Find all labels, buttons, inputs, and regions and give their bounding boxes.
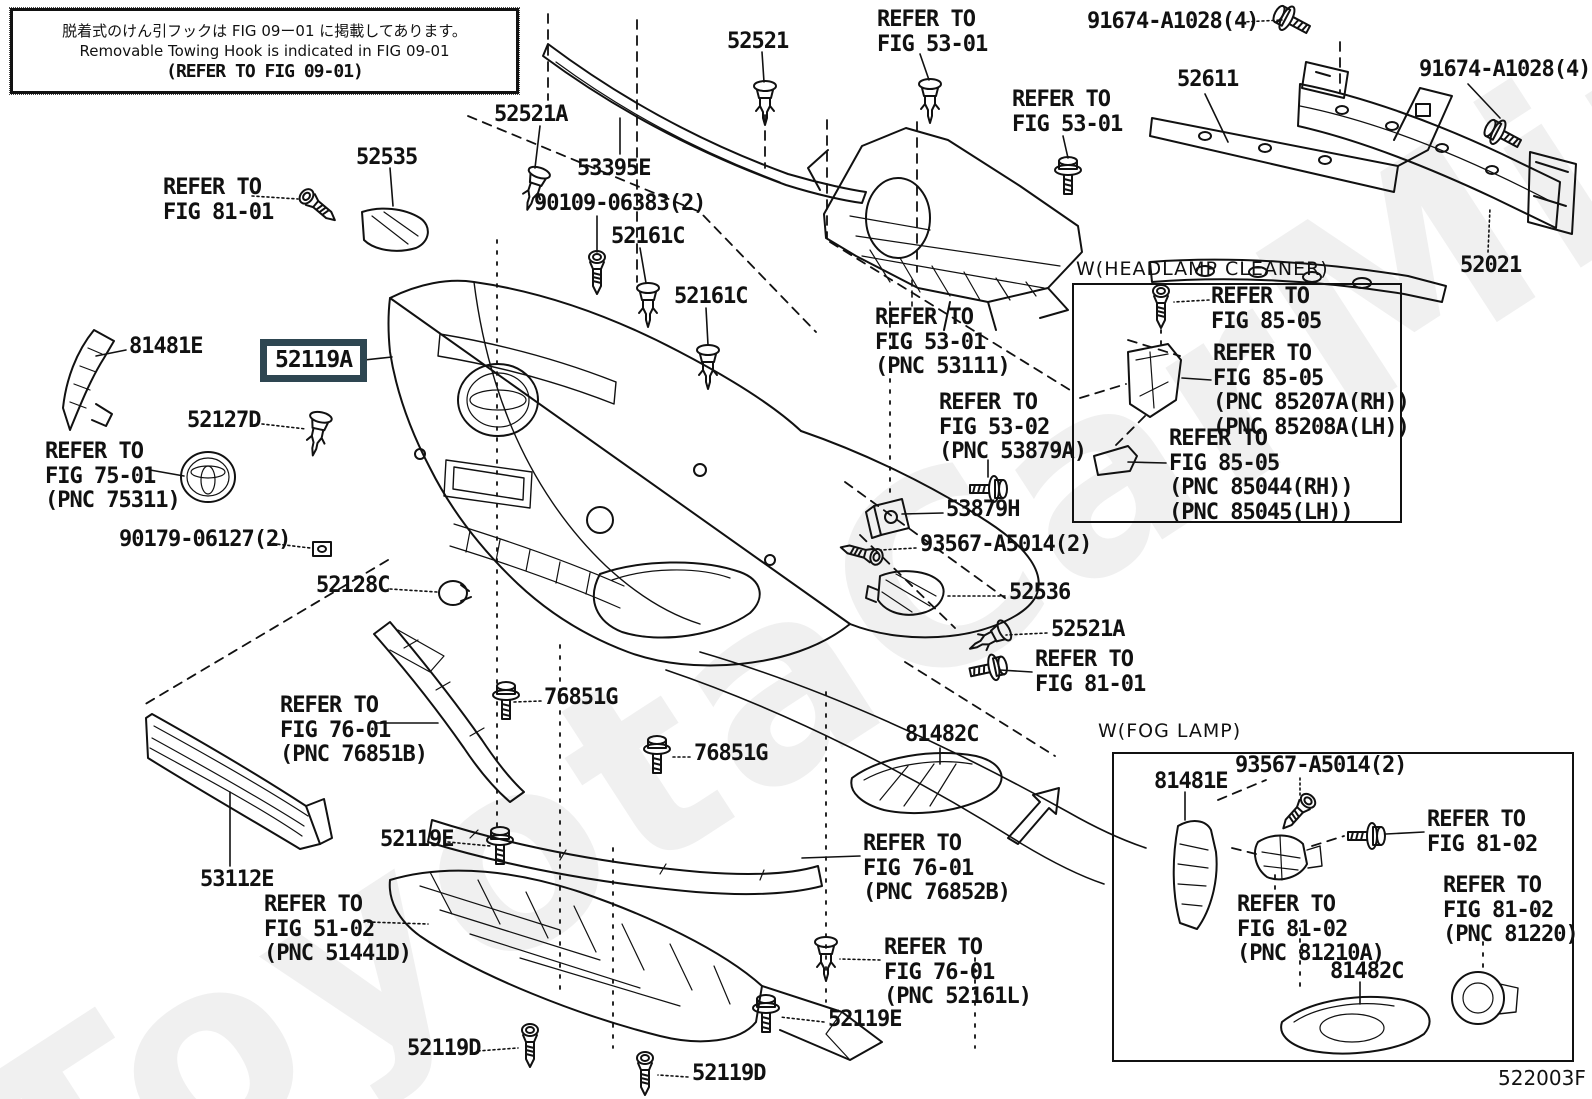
ref-label-fig81-01-b: REFER TO FIG 81-01 — [1035, 648, 1145, 697]
ref-label-fig76-01-pnc76851b: REFER TO FIG 76-01 (PNC 76851B) — [280, 694, 427, 768]
part-label-91674-b: 91674-A1028(4) — [1419, 58, 1590, 83]
ref-label-fig81-02-pnc81220: REFER TO FIG 81-02 (PNC 81220) — [1443, 874, 1578, 948]
part-label-52127d: 52127D — [187, 409, 260, 434]
highlighted-part-label-52119a: 52119A — [260, 339, 367, 382]
fog-lamp-box-title: W(FOG LAMP) — [1098, 720, 1241, 742]
stay-53879h-drawing — [866, 499, 909, 538]
ref-label-fig53-01-pnc53111: REFER TO FIG 53-01 (PNC 53111) — [875, 306, 1010, 380]
ref-label-fig53-02-pnc53879a: REFER TO FIG 53-02 (PNC 53879A) — [939, 391, 1086, 465]
part-label-81482c-main: 81482C — [905, 723, 978, 748]
part-label-93567-a: 93567-A5014(2) — [920, 533, 1091, 558]
ref-label-fig85-05-c: REFER TO FIG 85-05 (PNC 85044(RH)) (PNC … — [1169, 427, 1353, 526]
part-label-52119d-a: 52119D — [407, 1037, 480, 1062]
ref-label-fig51-02-pnc51441d: REFER TO FIG 51-02 (PNC 51441D) — [264, 893, 411, 967]
ref-label-fig75-01: REFER TO FIG 75-01 (PNC 75311) — [45, 440, 180, 514]
hole-cover-81482c-drawing — [851, 753, 1001, 813]
ref-label-fig81-02-a: REFER TO FIG 81-02 — [1427, 808, 1537, 857]
part-label-52021: 52021 — [1460, 254, 1521, 279]
ref-label-fig85-05-a: REFER TO FIG 85-05 — [1211, 285, 1321, 334]
ref-label-fig76-01-pnc76852b: REFER TO FIG 76-01 (PNC 76852B) — [863, 832, 1010, 906]
note-japanese-line: 脱着式のけん引フックは FIG 09ー01 に掲載してあります。 — [13, 20, 516, 41]
part-label-90179-06127: 90179-06127(2) — [119, 528, 290, 553]
reinforcement-52021-drawing — [1298, 62, 1576, 234]
part-label-52128c: 52128C — [316, 574, 389, 599]
part-label-52521: 52521 — [727, 30, 788, 55]
part-label-52161c-b: 52161C — [674, 285, 747, 310]
part-label-53112e: 53112E — [200, 868, 273, 893]
part-label-52521a-top: 52521A — [494, 103, 567, 128]
part-label-52521a-mid: 52521A — [1051, 618, 1124, 643]
ref-label-fig53-01-a: REFER TO FIG 53-01 — [877, 8, 987, 57]
towing-hook-note-box: 脱着式のけん引フックは FIG 09ー01 に掲載してあります。 Removab… — [10, 8, 519, 94]
radiator-grille-drawing — [808, 128, 1082, 330]
support-52536-drawing — [866, 571, 944, 615]
part-label-81482c-fog: 81482C — [1330, 960, 1403, 985]
bracket-52535-drawing — [362, 209, 428, 251]
ref-label-fig53-01-b: REFER TO FIG 53-01 — [1012, 88, 1122, 137]
ref-label-fig76-01-pnc52161l: REFER TO FIG 76-01 (PNC 52161L) — [884, 936, 1031, 1010]
parts-diagram-canvas: ToyotaCarMine.ru — [0, 0, 1592, 1099]
part-label-93567-fog: 93567-A5014(2) — [1235, 754, 1406, 779]
note-english-line: Removable Towing Hook is indicated in FI… — [13, 42, 516, 60]
note-refer-line: (REFER TO FIG 09-01) — [13, 61, 516, 82]
reinforcement-52611-drawing — [1150, 88, 1452, 192]
emblem-75311-drawing — [181, 452, 235, 502]
retainer-81481e-drawing — [63, 330, 114, 430]
part-label-52535: 52535 — [356, 146, 417, 171]
part-label-52119d-b: 52119D — [692, 1062, 765, 1087]
part-label-52161c-a: 52161C — [611, 225, 684, 250]
part-label-52611: 52611 — [1177, 68, 1238, 93]
part-label-52536: 52536 — [1009, 581, 1070, 606]
part-label-81481e-main: 81481E — [129, 335, 202, 360]
part-label-53395e: 53395E — [577, 157, 650, 182]
part-label-76851g-b: 76851G — [694, 742, 767, 767]
under-cover-51441d-drawing — [390, 871, 882, 1060]
part-label-52119e-a: 52119E — [380, 828, 453, 853]
part-label-52119e-b: 52119E — [828, 1008, 901, 1033]
part-label-53879h: 53879H — [946, 498, 1019, 523]
part-label-76851g-a: 76851G — [544, 686, 617, 711]
headlamp-cleaner-box-title: W(HEADLAMP CLEANER) — [1076, 258, 1329, 280]
part-label-91674-a: 91674-A1028(4) — [1087, 10, 1258, 35]
spoiler-76852b-drawing — [428, 820, 822, 894]
part-label-81481e-fog: 81481E — [1154, 770, 1227, 795]
diagram-code: 522003F — [1498, 1066, 1586, 1090]
ref-label-fig81-01-a: REFER TO FIG 81-01 — [163, 176, 273, 225]
ref-label-fig81-02-pnc81210a: REFER TO FIG 81-02 (PNC 81210A) — [1237, 893, 1384, 967]
part-label-90109-06383: 90109-06383(2) — [534, 192, 705, 217]
